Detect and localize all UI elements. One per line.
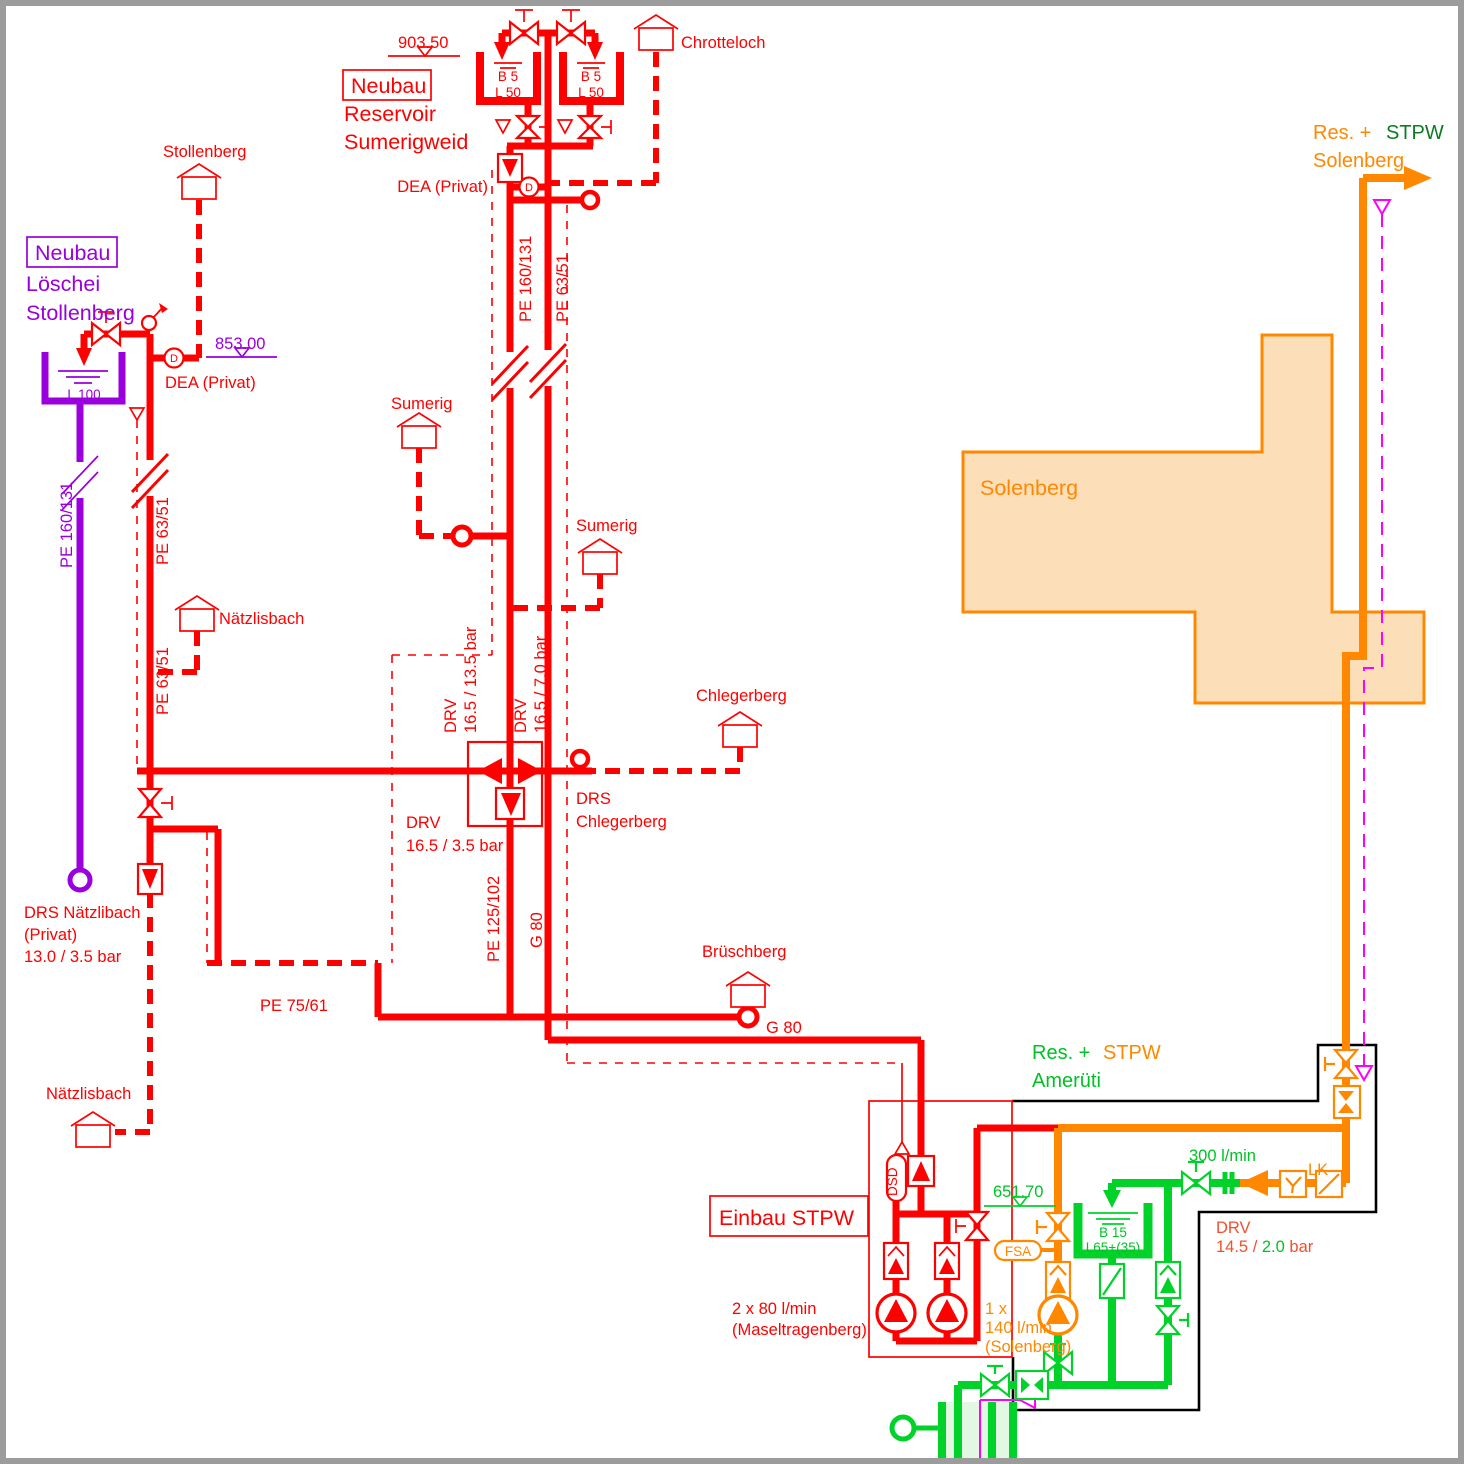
tank-inlet-arrow-icon <box>1103 1190 1121 1208</box>
svg-text:Amerüti: Amerüti <box>1032 1070 1101 1092</box>
svg-text:Reservoir: Reservoir <box>344 102 436 126</box>
label-chlegerberg: Chlegerberg <box>696 687 787 705</box>
svg-text:STPW: STPW <box>1103 1042 1161 1064</box>
label-pe63-left2: PE 63/51 <box>154 647 172 715</box>
label-stollenberg-haus: Stollenberg <box>163 143 246 161</box>
house-sumerig-2 <box>578 539 622 574</box>
label-naetzlisbach-mid: Nätzlisbach <box>219 610 304 628</box>
label-orange-pump: 1 x <box>985 1300 1008 1318</box>
svg-text:Stollenberg: Stollenberg <box>26 301 135 325</box>
house-naetzlisbach-unten <box>71 1112 115 1147</box>
tank-outlet-valve <box>496 116 611 138</box>
svg-text:L65+(35): L65+(35) <box>1086 1240 1140 1255</box>
label-sumerig-2: Sumerig <box>576 517 637 535</box>
label-drv-down: DRV <box>406 814 441 832</box>
flow-meter-icon <box>1334 1086 1360 1118</box>
label-brueschberg: Brüschberg <box>702 943 786 961</box>
hydrant-icon-purple <box>70 870 90 890</box>
svg-text:13.0 / 3.5 bar: 13.0 / 3.5 bar <box>24 948 122 966</box>
label-drv-right: DRV <box>512 698 530 733</box>
label-res-solenberg: Res. + <box>1313 122 1371 144</box>
inlet-arrow-icon <box>587 42 603 60</box>
svg-text:16.5 / 7.0 bar: 16.5 / 7.0 bar <box>532 635 550 733</box>
house-naetzlisbach <box>175 596 219 631</box>
inlet-arrow-icon <box>76 348 92 366</box>
label-tank-b15: B 15 <box>1099 1225 1127 1240</box>
house-sumerig-1 <box>397 413 441 448</box>
svg-text:D: D <box>170 353 178 365</box>
svg-text:Solenberg: Solenberg <box>1313 150 1404 172</box>
label-lk: LK <box>1308 1161 1328 1179</box>
label-drv-left: DRV <box>442 698 460 733</box>
house-chlegerberg <box>718 712 762 747</box>
house-chrotteloch <box>634 15 678 50</box>
left-main-valve <box>139 789 172 817</box>
label-300lmin: 300 l/min <box>1189 1147 1256 1165</box>
elevation-markers: 903.50 853.00 651.70 <box>206 34 1056 1206</box>
svg-text:B 5: B 5 <box>498 69 518 84</box>
label-pe160-purple: PE 160/131 <box>58 482 76 568</box>
label-pe125: PE 125/102 <box>485 876 503 962</box>
svg-text:(Privat): (Privat) <box>24 926 77 944</box>
red-pipe-network <box>84 33 1058 1341</box>
label-tank-l100: L 100 <box>67 387 100 402</box>
drv-reducer-icon <box>1240 1170 1268 1196</box>
flow-arrow-icon <box>1404 166 1432 190</box>
water-meter-icon <box>1016 1371 1048 1399</box>
label-drs-chlegerberg: DRS <box>576 790 611 808</box>
label-res-amerueti: Res. + <box>1032 1042 1090 1064</box>
svg-text:D: D <box>525 182 533 194</box>
label-dsd: DSD <box>885 1167 900 1196</box>
schematic-canvas: Solenberg <box>0 0 1464 1464</box>
svg-text:Löschei: Löschei <box>26 272 100 296</box>
network-schematic: Solenberg <box>0 0 1464 1464</box>
signal-end-triangle-icon <box>1356 1066 1372 1080</box>
label-dea-privat-left: DEA (Privat) <box>165 374 256 392</box>
label-fsa: FSA <box>1005 1244 1031 1259</box>
svg-text:B 5: B 5 <box>581 69 601 84</box>
label-drv-value: 14.5 / 2.0 bar <box>1216 1238 1314 1256</box>
svg-text:16.5 / 3.5 bar: 16.5 / 3.5 bar <box>406 837 504 855</box>
signal-funnel-icon-magenta <box>1374 200 1390 214</box>
elevation-903: 903.50 <box>398 34 448 52</box>
house-brueschberg <box>726 972 770 1007</box>
solenberg-area: Solenberg <box>963 335 1424 703</box>
drs-naetzlibach-reducer <box>138 864 162 894</box>
label-chrotteloch: Chrotteloch <box>681 34 765 52</box>
hydrant-icon-green <box>892 1417 914 1439</box>
svg-text:(Solenberg): (Solenberg) <box>985 1338 1071 1356</box>
svg-text:(Maseltragenberg): (Maseltragenberg) <box>732 1321 867 1339</box>
title-neubau-loeschei: Neubau <box>35 241 110 265</box>
drv-station <box>468 742 542 826</box>
svg-text:140 l/min: 140 l/min <box>985 1319 1052 1337</box>
label-pe63-left1: PE 63/51 <box>154 497 172 565</box>
label-g80-horizontal: G 80 <box>766 1019 802 1037</box>
signal-funnel-icon <box>130 408 144 420</box>
inlet-arrow-icon <box>494 42 510 60</box>
svg-text:L 50: L 50 <box>495 85 521 100</box>
label-pe160-mid: PE 160/131 <box>517 236 535 322</box>
label-g80-vertical: G 80 <box>528 912 546 948</box>
label-red-pumps: 2 x 80 l/min <box>732 1300 816 1318</box>
label-pe63-mid: PE 63/51 <box>554 254 572 322</box>
svg-text:Chlegerberg: Chlegerberg <box>576 813 667 831</box>
title-einbau-stpw: Einbau STPW <box>719 1206 855 1230</box>
label-drv-station: DRV <box>1216 1219 1251 1237</box>
svg-text:Sumerigweid: Sumerigweid <box>344 130 468 154</box>
label-sumerig-1: Sumerig <box>391 395 452 413</box>
purple-loeschei-network <box>45 352 122 890</box>
title-neubau-reservoir: Neubau <box>351 74 426 98</box>
dea-check-valve <box>498 154 522 182</box>
svg-text:L 50: L 50 <box>578 85 604 100</box>
svg-text:16.5 / 13.5 bar: 16.5 / 13.5 bar <box>462 626 480 733</box>
label-naetzlisbach-unten: Nätzlisbach <box>46 1085 131 1103</box>
red-dashed-connections <box>115 52 740 1132</box>
elevation-651: 651.70 <box>993 1183 1043 1201</box>
solenberg-area-label: Solenberg <box>980 476 1078 500</box>
label-pe75: PE 75/61 <box>260 997 328 1015</box>
signal-triangle-icon <box>895 1142 909 1154</box>
label-drs-naetzlibach: DRS Nätzlibach <box>24 904 140 922</box>
elevation-853: 853.00 <box>215 335 265 353</box>
svg-text:STPW: STPW <box>1386 122 1444 144</box>
label-dea-privat-top: DEA (Privat) <box>397 178 488 196</box>
house-stollenberg <box>177 164 221 199</box>
